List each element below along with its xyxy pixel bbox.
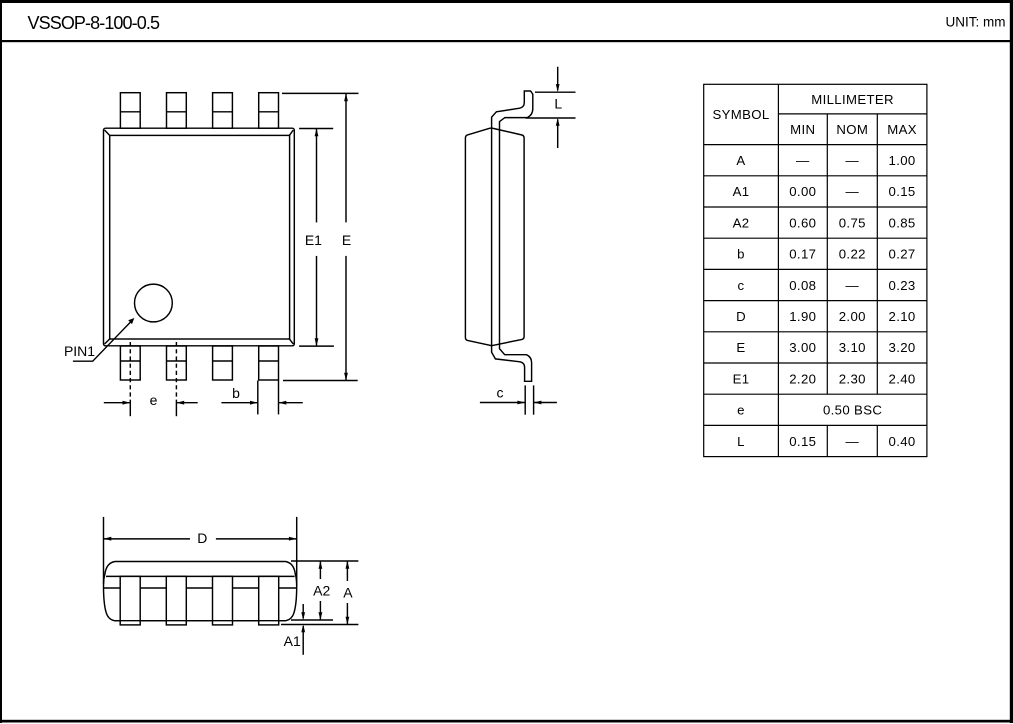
svg-text:3.20: 3.20	[889, 340, 916, 355]
svg-text:0.50 BSC: 0.50 BSC	[823, 403, 882, 418]
svg-text:VSSOP-8-100-0.5: VSSOP-8-100-0.5	[28, 13, 160, 33]
svg-text:—: —	[846, 278, 860, 293]
svg-text:L: L	[554, 96, 562, 112]
svg-text:1.90: 1.90	[789, 309, 816, 324]
svg-text:c: c	[497, 385, 504, 401]
svg-text:2.20: 2.20	[789, 371, 816, 386]
svg-text:PIN1: PIN1	[64, 343, 95, 359]
svg-text:0.60: 0.60	[789, 215, 816, 230]
svg-text:UNIT: mm: UNIT: mm	[946, 15, 1006, 30]
svg-text:MILLIMETER: MILLIMETER	[811, 92, 894, 107]
svg-text:D: D	[197, 530, 207, 546]
svg-text:A1: A1	[284, 633, 301, 649]
svg-text:—: —	[846, 434, 860, 449]
svg-text:SYMBOL: SYMBOL	[712, 107, 769, 122]
svg-text:3.10: 3.10	[839, 340, 866, 355]
svg-text:D: D	[736, 309, 746, 324]
svg-text:—: —	[796, 153, 810, 168]
svg-text:—: —	[846, 184, 860, 199]
svg-text:A2: A2	[313, 582, 330, 598]
svg-text:—: —	[846, 153, 860, 168]
svg-text:0.00: 0.00	[789, 184, 816, 199]
svg-text:E: E	[736, 340, 745, 355]
svg-text:0.17: 0.17	[789, 247, 816, 262]
svg-text:2.40: 2.40	[889, 371, 916, 386]
svg-text:e: e	[737, 403, 745, 418]
svg-text:0.75: 0.75	[839, 215, 866, 230]
svg-text:c: c	[738, 278, 745, 293]
svg-text:0.27: 0.27	[889, 247, 916, 262]
svg-text:1.00: 1.00	[889, 153, 916, 168]
svg-text:0.15: 0.15	[889, 184, 916, 199]
svg-text:0.40: 0.40	[889, 434, 916, 449]
svg-text:E: E	[342, 232, 351, 248]
svg-text:e: e	[150, 392, 158, 408]
svg-text:NOM: NOM	[836, 122, 868, 137]
svg-text:2.10: 2.10	[889, 309, 916, 324]
svg-text:E1: E1	[733, 371, 750, 386]
svg-text:0.22: 0.22	[839, 247, 866, 262]
svg-text:b: b	[232, 385, 240, 401]
svg-text:A: A	[736, 153, 745, 168]
svg-text:b: b	[737, 247, 745, 262]
svg-text:A1: A1	[733, 184, 750, 199]
svg-text:0.23: 0.23	[889, 278, 916, 293]
svg-text:A: A	[343, 584, 353, 600]
svg-text:0.85: 0.85	[889, 215, 916, 230]
svg-text:MAX: MAX	[887, 122, 917, 137]
svg-text:3.00: 3.00	[789, 340, 816, 355]
svg-text:MIN: MIN	[790, 122, 815, 137]
svg-text:2.30: 2.30	[839, 371, 866, 386]
svg-text:A2: A2	[733, 215, 750, 230]
svg-text:E1: E1	[305, 232, 322, 248]
svg-text:L: L	[737, 434, 745, 449]
svg-text:2.00: 2.00	[839, 309, 866, 324]
svg-text:0.15: 0.15	[789, 434, 816, 449]
svg-text:0.08: 0.08	[789, 278, 816, 293]
